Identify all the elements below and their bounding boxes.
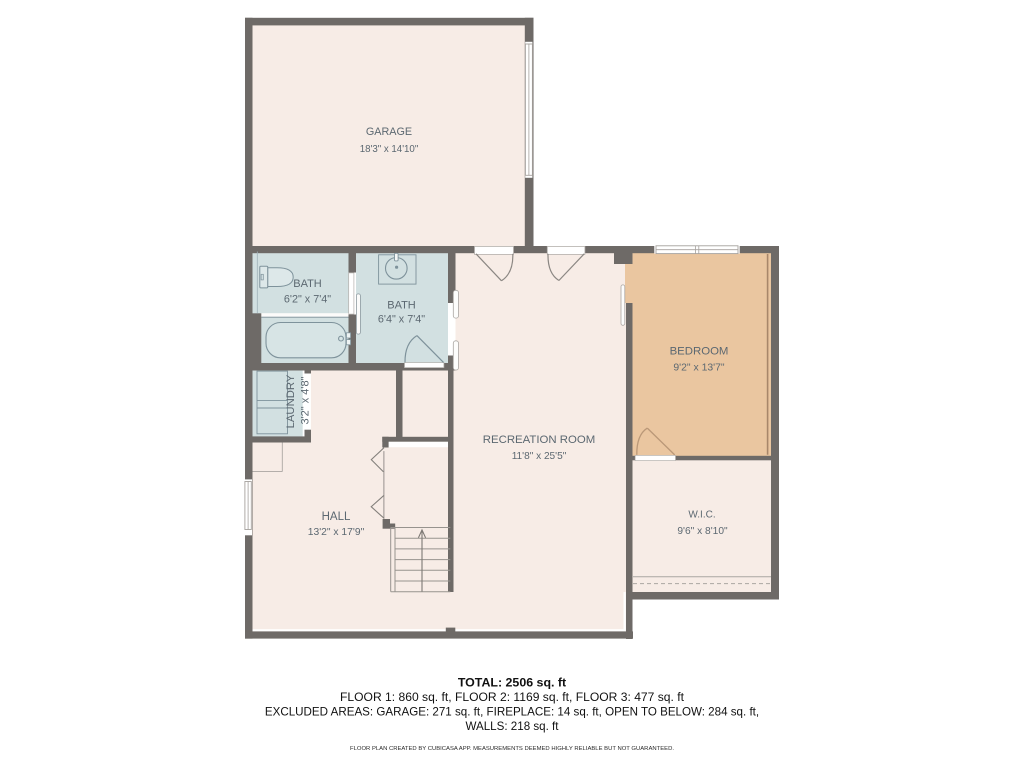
- svg-text:3'2" x 4'8": 3'2" x 4'8": [300, 376, 312, 424]
- svg-text:9'6" x 8'10": 9'6" x 8'10": [677, 526, 728, 537]
- svg-text:W.I.C.: W.I.C.: [688, 510, 715, 521]
- svg-text:WALLS: 218 sq. ft: WALLS: 218 sq. ft: [465, 720, 559, 733]
- svg-text:FLOOR 1: 860 sq. ft, FLOOR 2:: FLOOR 1: 860 sq. ft, FLOOR 2: 1169 sq. f…: [340, 690, 685, 704]
- svg-text:13'2" x 17'9": 13'2" x 17'9": [308, 527, 365, 538]
- svg-text:HALL: HALL: [322, 511, 351, 523]
- svg-text:9'2" x 13'7": 9'2" x 13'7": [673, 363, 725, 374]
- svg-text:GARAGE: GARAGE: [366, 126, 412, 138]
- svg-text:18'3" x 14'10": 18'3" x 14'10": [360, 144, 419, 155]
- svg-text:6'2" x 7'4": 6'2" x 7'4": [284, 294, 331, 306]
- svg-text:RECREATION ROOM: RECREATION ROOM: [483, 434, 595, 446]
- svg-text:BATH: BATH: [293, 278, 322, 290]
- svg-text:11'8" x 25'5": 11'8" x 25'5": [512, 451, 567, 462]
- svg-text:6'4" x 7'4": 6'4" x 7'4": [378, 314, 425, 326]
- svg-text:BEDROOM: BEDROOM: [670, 345, 729, 357]
- svg-text:EXCLUDED AREAS: GARAGE: 271 sq: EXCLUDED AREAS: GARAGE: 271 sq. ft, FIRE…: [265, 706, 759, 719]
- svg-text:LAUNDRY: LAUNDRY: [285, 374, 297, 428]
- svg-text:TOTAL: 2506 sq. ft: TOTAL: 2506 sq. ft: [458, 676, 566, 690]
- svg-text:BATH: BATH: [387, 300, 416, 312]
- svg-text:FLOOR PLAN CREATED BY CUBICASA: FLOOR PLAN CREATED BY CUBICASA APP. MEAS…: [350, 746, 674, 752]
